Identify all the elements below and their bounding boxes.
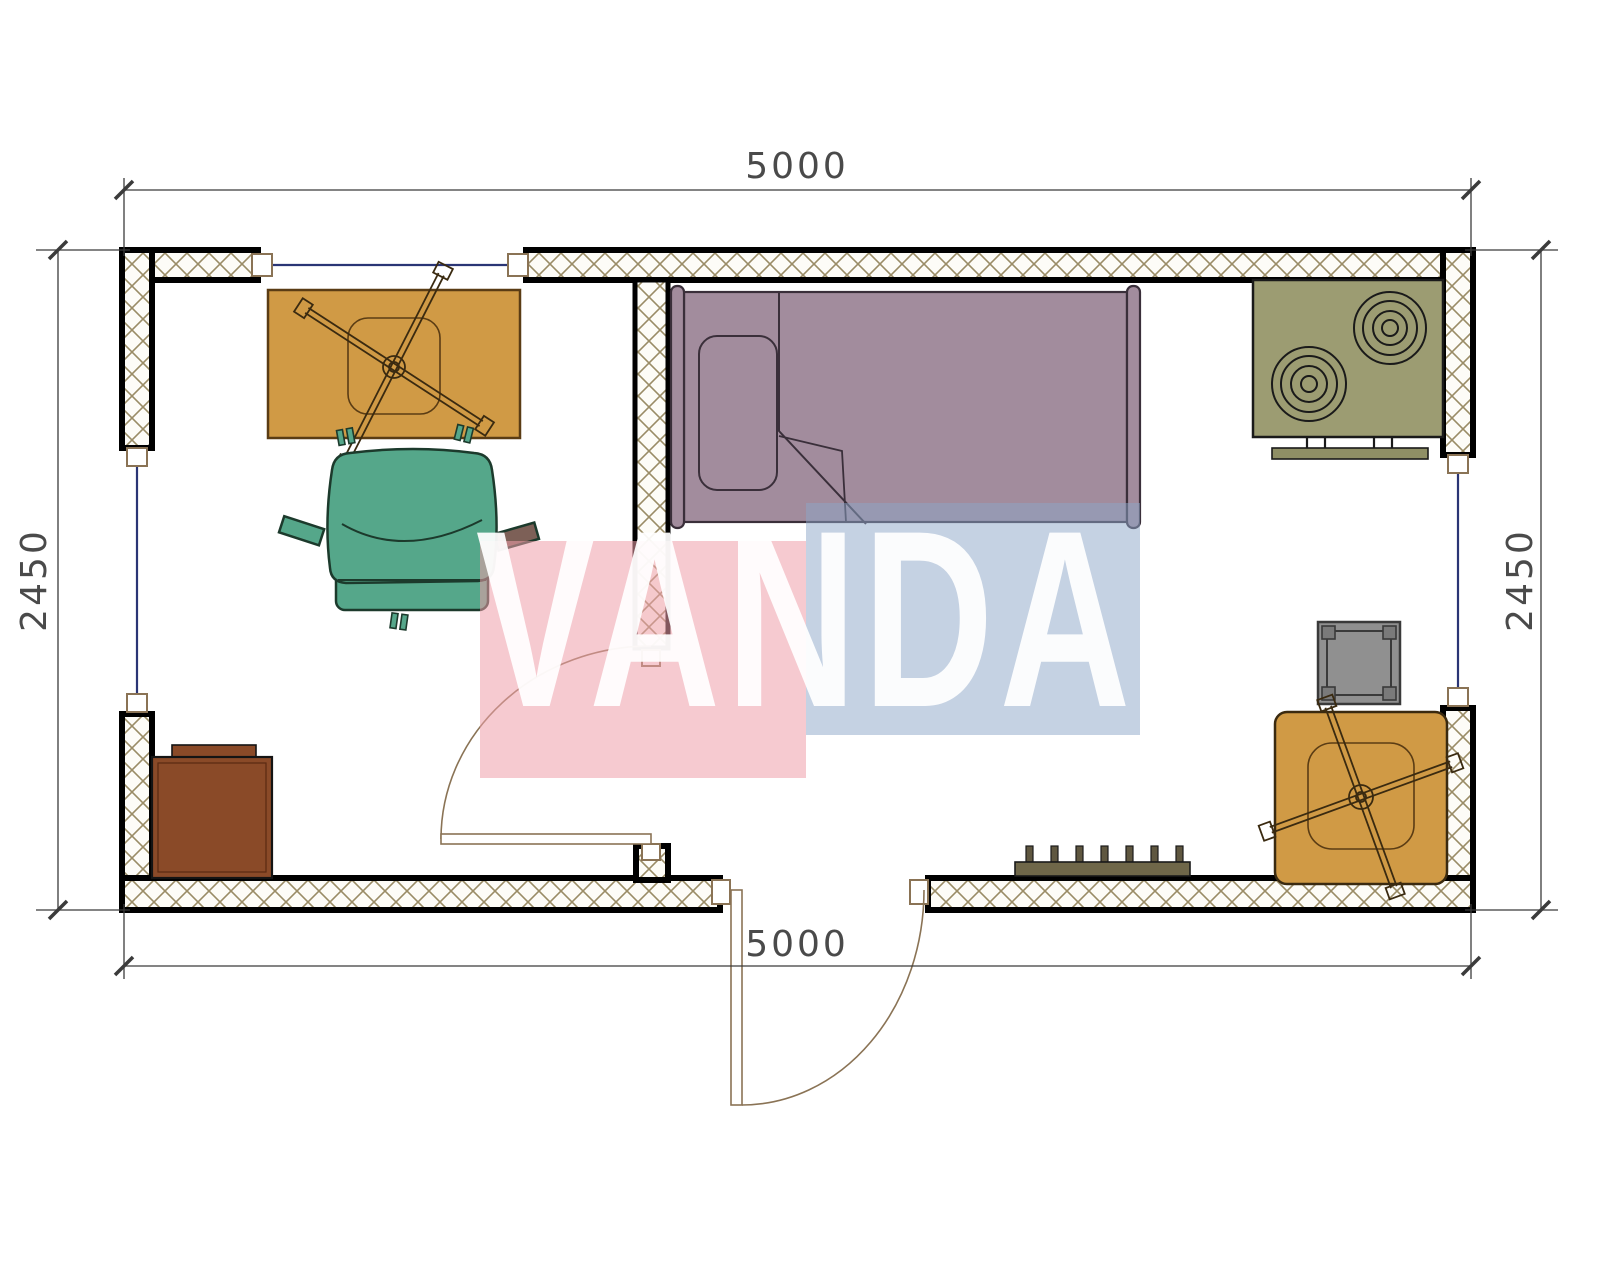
stove-handle-stems — [1307, 437, 1392, 448]
interior-door-leaf — [441, 834, 651, 844]
armrest-left — [279, 516, 324, 545]
watermark: VANDA — [476, 478, 1140, 778]
armchair-back — [327, 449, 496, 583]
stool — [1318, 622, 1400, 704]
dining-table — [268, 262, 520, 472]
watermark-text: VANDA — [476, 478, 1136, 760]
window-frame-marker — [252, 254, 272, 276]
stove — [1253, 280, 1443, 459]
square-table-top — [1275, 712, 1447, 884]
coat-rack-bar — [1015, 862, 1190, 876]
cabinet — [152, 745, 272, 878]
door-jamb-marker — [910, 880, 928, 904]
dim-label-top: 5000 — [745, 146, 849, 187]
coat-rack — [1015, 846, 1190, 876]
wall-top-left-vertical — [122, 250, 152, 448]
stove-handle-bar — [1272, 448, 1428, 459]
entry-door-leaf — [731, 890, 742, 1105]
wall-right-upper — [1443, 250, 1473, 455]
dim-label-left: 2450 — [14, 528, 55, 632]
cabinet-body — [152, 757, 272, 878]
square-table — [1259, 695, 1464, 900]
floor-plan-drawing: 5000 5000 2450 2450 VANDA — [0, 0, 1600, 1280]
dim-label-bottom: 5000 — [745, 924, 849, 965]
entry-door-swing-arc — [742, 890, 924, 1105]
coat-rack-pegs — [1026, 846, 1183, 862]
window-frame-marker — [508, 254, 528, 276]
floor-plan-page: 5000 5000 2450 2450 VANDA — [0, 0, 1600, 1280]
door-jamb-marker — [642, 844, 660, 860]
wall-top — [526, 250, 1473, 280]
window-frame-marker — [1448, 688, 1468, 706]
window-frame-marker — [127, 448, 147, 466]
dim-label-right: 2450 — [1500, 528, 1541, 632]
wall-bottom-left — [122, 878, 720, 910]
window-frame-marker — [127, 694, 147, 712]
door-jamb-marker — [712, 880, 730, 904]
caster-wheel — [390, 613, 408, 630]
window-frame-marker — [1448, 455, 1468, 473]
